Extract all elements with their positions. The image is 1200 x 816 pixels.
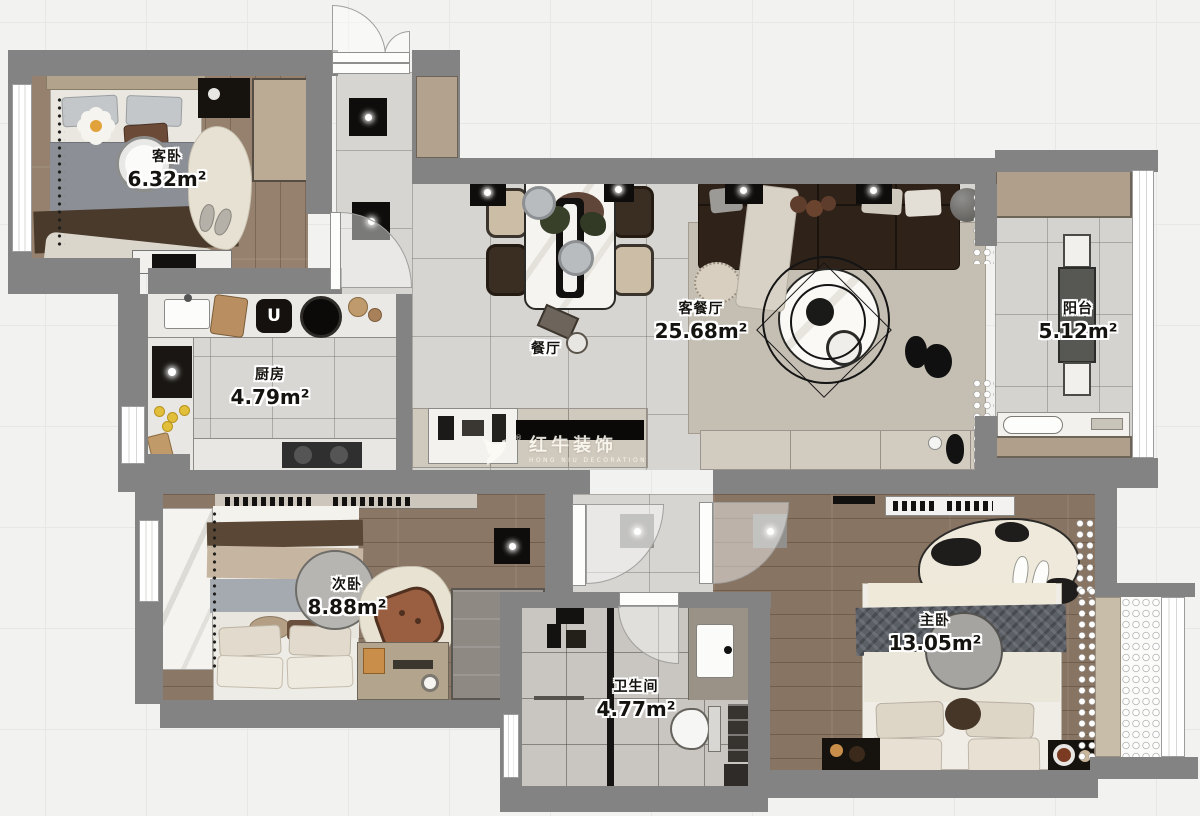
pillow [968, 737, 1041, 770]
nightstand-decor [849, 746, 865, 762]
wall [8, 258, 140, 294]
master-bedroom-door-leaf [699, 502, 713, 584]
room-kitchen: U [148, 294, 396, 470]
tv-on-dresser [152, 254, 196, 268]
room-balcony [995, 170, 1132, 458]
pendant-lamp-dot [615, 186, 622, 193]
pillow [870, 737, 943, 770]
nightstand-decor [208, 88, 220, 100]
window-sill-marble [161, 508, 213, 670]
wall [8, 50, 338, 76]
decor-vase [946, 434, 964, 464]
nightstand-tray [1053, 744, 1075, 766]
window [1132, 170, 1154, 458]
shower-head [556, 608, 584, 624]
second-bedroom-door-leaf [572, 504, 586, 586]
floor-plan: U [0, 0, 1200, 816]
wall [1090, 757, 1198, 779]
nightstand-decor [830, 744, 843, 757]
pillow [875, 701, 944, 739]
books-row [225, 497, 313, 506]
shower-control [547, 624, 561, 648]
round-ottoman [925, 612, 1003, 690]
wood-bowl [368, 308, 382, 322]
bed-fold [868, 583, 1056, 607]
window [121, 406, 145, 464]
window [503, 714, 519, 778]
watermark-brand: 红牛装饰 [529, 437, 647, 456]
pillow [288, 625, 351, 657]
bath-shelf [728, 704, 748, 762]
books-row [947, 501, 993, 511]
lemon [162, 421, 173, 432]
registered-mark: ® [515, 434, 522, 442]
cow-patch [995, 522, 1029, 542]
cow-patch [931, 538, 981, 566]
curtain-sheer [1077, 586, 1095, 764]
cup [566, 332, 588, 354]
toilet-tank [708, 706, 721, 752]
cutting-board [209, 294, 248, 338]
round-pillow-brown [945, 698, 981, 730]
wall [995, 150, 1158, 172]
lemon [154, 406, 165, 417]
bal-chair [1063, 234, 1091, 268]
counter-item [1091, 418, 1123, 430]
round-stool [116, 136, 172, 192]
brand-watermark: ® 红牛装饰 HONG NIU DECORATION [478, 434, 647, 468]
plate [558, 240, 594, 276]
throw-brown [207, 520, 363, 549]
wall [975, 184, 997, 246]
wall [545, 494, 573, 594]
desk-box [363, 648, 385, 674]
wall [135, 470, 590, 494]
curtain-frill [56, 96, 65, 248]
balcony-cabinet-bottom [995, 436, 1132, 458]
bay-sill [1095, 597, 1121, 757]
books-row [333, 497, 413, 506]
room-second-bedroom [161, 494, 545, 700]
ceiling-spotlight [349, 98, 387, 136]
spotlight-dot [740, 187, 747, 194]
wall [1095, 485, 1117, 585]
dining-chair [612, 244, 654, 296]
spotlight-dot [870, 187, 877, 194]
towel-bar [534, 696, 584, 700]
kitchen-sink [164, 299, 210, 329]
bed-headboard [46, 74, 206, 90]
wall [396, 294, 412, 470]
wall [306, 74, 332, 214]
wall [768, 770, 1098, 798]
armchair-button [415, 618, 421, 624]
entry-door-leaf [332, 63, 410, 74]
round-cushion [821, 196, 836, 211]
faucet [184, 294, 192, 302]
pillow [216, 655, 283, 689]
desk-lamp [421, 674, 439, 692]
plate [522, 186, 556, 220]
nightstand [198, 78, 250, 118]
dining-chair [486, 244, 528, 296]
pendant-lamp-dot [484, 189, 491, 196]
floor-sculpture [924, 344, 952, 378]
flower-decor [90, 120, 102, 132]
pillow [286, 655, 353, 689]
hob-icon: U [256, 299, 292, 333]
bathroom-door-leaf [619, 592, 679, 606]
sofa-pillow [904, 189, 941, 217]
decor-ball [928, 436, 942, 450]
pouf [694, 262, 740, 304]
wall [440, 158, 996, 184]
ceiling-spotlight [494, 528, 530, 564]
toilet-bowl [670, 708, 710, 750]
bay-curtain [1121, 597, 1161, 757]
bal-table [1058, 267, 1096, 363]
shower-glass-divider [607, 606, 614, 786]
window [139, 520, 159, 602]
wall [500, 786, 768, 812]
bal-chair [1063, 362, 1091, 396]
wall [148, 268, 342, 294]
cooktop-burner [294, 446, 312, 464]
guest-bedroom-door-leaf [330, 212, 341, 290]
wok [300, 296, 342, 338]
bull-logo-icon [478, 434, 512, 468]
wall [713, 470, 1105, 494]
bath-mat [724, 764, 748, 786]
shower-caddy [566, 630, 586, 648]
basin-faucet [724, 646, 732, 654]
balcony-cabinet-top [995, 170, 1132, 218]
plant-centerpiece [580, 212, 606, 236]
curtain-frill [211, 510, 220, 668]
window [12, 84, 32, 252]
hob-symbol: U [267, 306, 281, 326]
lemon [179, 405, 190, 416]
coffee-machine [438, 416, 454, 440]
wardrobe [252, 78, 308, 182]
pillow [125, 95, 182, 127]
desk-keyboard [393, 660, 433, 669]
window [1161, 597, 1185, 757]
wall [748, 592, 770, 788]
tv-bar [833, 496, 875, 504]
laundry-sink [1003, 416, 1063, 434]
cooktop-burner [330, 446, 348, 464]
round-cushion [790, 196, 807, 213]
shoe-cabinet [416, 76, 458, 158]
watermark-subtitle: HONG NIU DECORATION [529, 458, 647, 464]
stove-light [168, 368, 176, 376]
entry-door-leaf [332, 52, 410, 63]
wall [1095, 583, 1195, 597]
wood-bowl [348, 297, 368, 317]
pillow [218, 624, 281, 657]
wall [160, 700, 517, 728]
entry-door-arc [332, 5, 386, 57]
armchair-button [399, 610, 405, 616]
books-row [893, 501, 937, 511]
